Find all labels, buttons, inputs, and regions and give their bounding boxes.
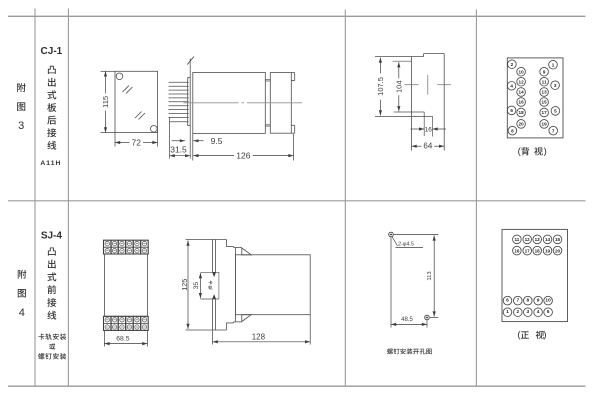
svg-text:11: 11 (514, 237, 519, 242)
svg-text:12: 12 (525, 237, 531, 242)
svg-text:1: 1 (506, 309, 509, 315)
svg-text:3: 3 (554, 83, 557, 88)
svg-text:18: 18 (535, 248, 541, 253)
svg-text:18: 18 (519, 110, 525, 115)
svg-text:8: 8 (526, 297, 529, 303)
svg-text:125: 125 (180, 279, 189, 291)
svg-text:19: 19 (545, 248, 551, 253)
svg-text:128: 128 (252, 333, 266, 342)
svg-text:12: 12 (519, 79, 525, 84)
svg-text:14: 14 (519, 90, 525, 95)
svg-text:9.5: 9.5 (211, 136, 223, 146)
svg-text:3: 3 (18, 120, 24, 132)
svg-text:16: 16 (425, 126, 433, 133)
svg-text:16: 16 (514, 248, 520, 253)
svg-text:13: 13 (535, 237, 541, 242)
svg-text:64: 64 (423, 142, 432, 151)
svg-text:10: 10 (545, 297, 551, 303)
svg-text:115: 115 (101, 96, 110, 108)
svg-text:31.5: 31.5 (170, 145, 187, 155)
svg-text:19: 19 (542, 122, 548, 127)
svg-text:2-φ4.5: 2-φ4.5 (398, 241, 414, 247)
svg-text:): ) (543, 330, 546, 341)
svg-text:17: 17 (525, 248, 531, 253)
svg-text:3: 3 (526, 309, 529, 315)
svg-text:4: 4 (19, 307, 25, 319)
svg-text:17: 17 (542, 110, 548, 115)
svg-text:7: 7 (516, 297, 519, 303)
svg-text:4: 4 (537, 309, 540, 315)
svg-text:5: 5 (547, 309, 550, 315)
svg-text:14: 14 (545, 237, 551, 242)
svg-text:126: 126 (236, 151, 250, 161)
svg-text:20: 20 (555, 248, 561, 253)
svg-text:8: 8 (511, 128, 514, 133)
svg-text:4: 4 (510, 84, 513, 89)
svg-text:7: 7 (552, 128, 555, 133)
svg-text:13: 13 (542, 90, 548, 95)
svg-text:104: 104 (394, 80, 403, 93)
svg-text:35: 35 (193, 282, 200, 290)
svg-text:68.5: 68.5 (116, 336, 129, 343)
svg-text:20: 20 (519, 122, 525, 127)
svg-text:15: 15 (555, 237, 561, 242)
svg-text:6: 6 (510, 108, 513, 113)
svg-text:2: 2 (516, 309, 519, 315)
svg-text:11: 11 (542, 79, 547, 84)
svg-text:A11H: A11H (40, 160, 61, 167)
svg-text:CJ-1: CJ-1 (41, 46, 63, 57)
svg-text:(: ( (518, 146, 522, 157)
svg-text:2: 2 (511, 62, 514, 67)
svg-text:107.5: 107.5 (376, 77, 385, 96)
svg-text:9: 9 (537, 297, 540, 303)
svg-text:SJ-4: SJ-4 (41, 230, 63, 241)
svg-text:(: ( (517, 330, 521, 341)
svg-text:): ) (544, 146, 547, 157)
svg-text:16: 16 (519, 100, 525, 105)
svg-text:5: 5 (554, 109, 557, 114)
svg-text:10: 10 (519, 69, 525, 74)
svg-text:48.5: 48.5 (401, 317, 413, 323)
svg-text:1: 1 (552, 62, 555, 67)
svg-text:72: 72 (132, 138, 142, 148)
svg-text:15: 15 (542, 100, 548, 105)
svg-text:9: 9 (543, 69, 546, 74)
svg-text:6: 6 (506, 297, 509, 303)
svg-text:113: 113 (427, 271, 433, 280)
